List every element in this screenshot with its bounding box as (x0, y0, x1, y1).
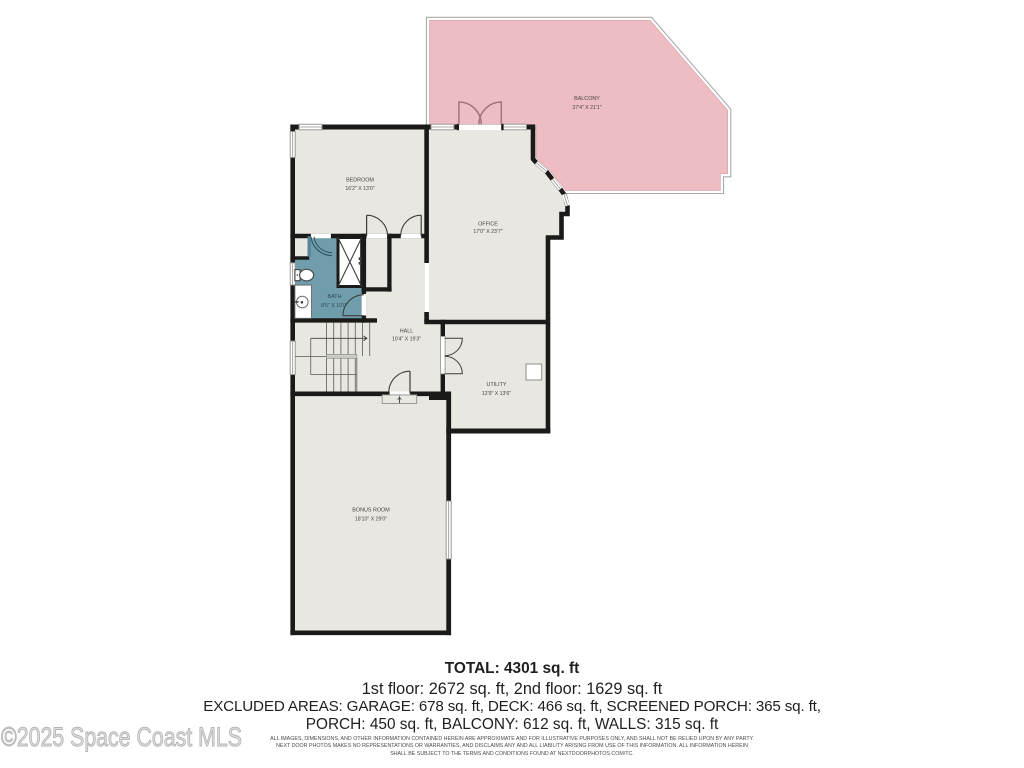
svg-text:OFFICE: OFFICE (478, 222, 498, 228)
svg-text:12'9" X 13'6": 12'9" X 13'6" (482, 391, 511, 397)
svg-text:BEDROOM: BEDROOM (346, 178, 374, 184)
svg-text:16'2" X 13'0": 16'2" X 13'0" (345, 186, 374, 192)
svg-text:HALL: HALL (400, 328, 414, 334)
svg-text:10'4" X 19'3": 10'4" X 19'3" (392, 336, 421, 342)
svg-text:BONUS ROOM: BONUS ROOM (352, 507, 390, 513)
svg-text:BATH: BATH (328, 294, 342, 300)
svg-text:BALCONY: BALCONY (574, 96, 600, 102)
svg-text:18'10" X 29'0": 18'10" X 29'0" (355, 516, 387, 522)
svg-text:17'0" X 23'7": 17'0" X 23'7" (473, 229, 502, 235)
svg-text:8'5" X 10'0": 8'5" X 10'0" (321, 303, 348, 309)
svg-text:37'4" X 21'1": 37'4" X 21'1" (572, 105, 601, 111)
svg-text:UTILITY: UTILITY (486, 382, 506, 388)
